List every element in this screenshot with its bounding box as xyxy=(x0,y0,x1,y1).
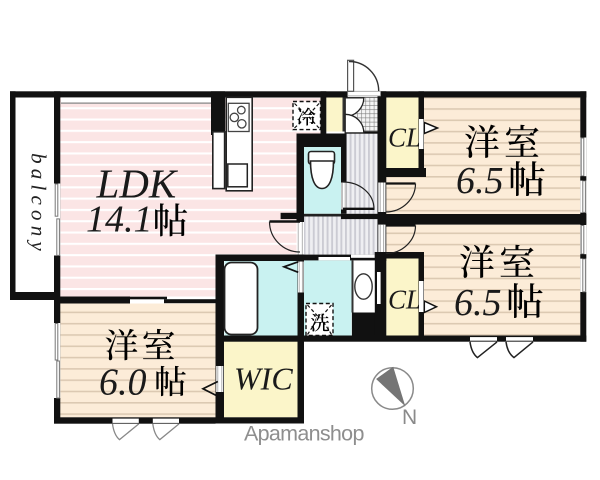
svg-text:CL: CL xyxy=(388,123,421,153)
svg-text:CL: CL xyxy=(388,285,421,315)
svg-text:6.5: 6.5 xyxy=(454,282,502,324)
svg-text:6.0: 6.0 xyxy=(99,362,147,404)
svg-text:balcony: balcony xyxy=(27,153,51,256)
svg-text:WIC: WIC xyxy=(234,361,293,397)
svg-text:N: N xyxy=(402,406,417,429)
svg-text:14.1: 14.1 xyxy=(86,199,153,241)
svg-text:Apamanshop: Apamanshop xyxy=(244,422,364,446)
svg-text:6.5: 6.5 xyxy=(456,160,504,202)
